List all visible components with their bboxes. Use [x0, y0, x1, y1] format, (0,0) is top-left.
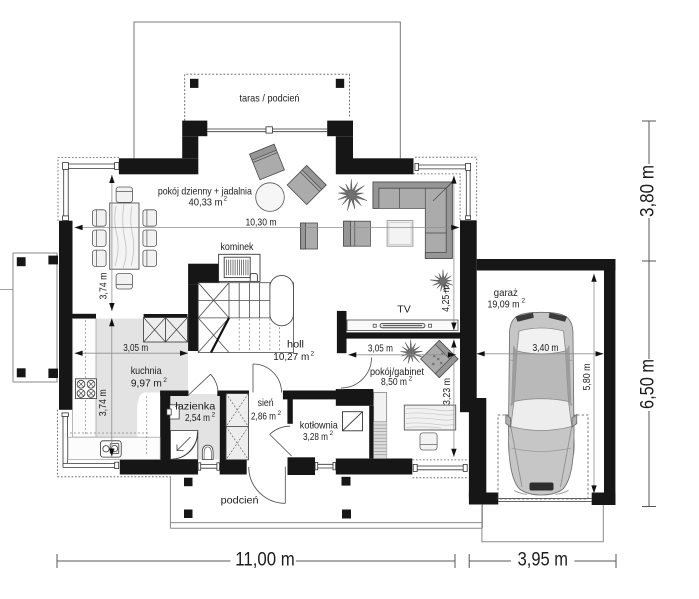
svg-text:podcień: podcień	[221, 495, 259, 507]
svg-text:10,30 m: 10,30 m	[246, 217, 277, 229]
svg-text:3,28 m: 3,28 m	[303, 431, 328, 443]
svg-text:łazienka: łazienka	[175, 401, 215, 413]
svg-text:2: 2	[330, 430, 334, 437]
svg-text:2,54 m: 2,54 m	[185, 412, 210, 424]
svg-text:3,05 m: 3,05 m	[368, 342, 393, 354]
svg-text:3,74 m: 3,74 m	[97, 389, 109, 416]
svg-text:8,50 m: 8,50 m	[381, 376, 407, 388]
svg-text:11,00 m: 11,00 m	[235, 549, 295, 570]
svg-text:4,25 m: 4,25 m	[440, 285, 452, 312]
svg-text:taras / podcień: taras / podcień	[240, 93, 300, 105]
svg-text:3,40 m: 3,40 m	[533, 342, 559, 354]
svg-text:6,50 m: 6,50 m	[638, 359, 659, 409]
svg-text:5,80 m: 5,80 m	[581, 363, 593, 390]
svg-text:2: 2	[212, 412, 216, 419]
svg-text:TV: TV	[397, 304, 410, 316]
svg-text:2: 2	[409, 375, 413, 382]
svg-text:kominek: kominek	[221, 241, 255, 253]
svg-text:2: 2	[278, 410, 282, 417]
svg-text:9,97 m: 9,97 m	[131, 378, 162, 390]
svg-text:2: 2	[163, 377, 167, 384]
svg-text:2: 2	[224, 196, 228, 203]
svg-text:2,86 m: 2,86 m	[251, 411, 276, 423]
svg-text:3,05 m: 3,05 m	[123, 342, 148, 354]
svg-text:10,27 m: 10,27 m	[273, 351, 309, 363]
svg-text:garaż: garaż	[494, 287, 518, 299]
svg-text:kuchnia: kuchnia	[131, 365, 162, 377]
svg-text:2: 2	[311, 351, 315, 358]
svg-text:sień: sień	[258, 397, 274, 409]
svg-text:3,80 m: 3,80 m	[638, 165, 659, 217]
svg-text:3,74 m: 3,74 m	[97, 272, 109, 299]
svg-text:40,33 m: 40,33 m	[189, 196, 223, 208]
svg-text:19,09 m: 19,09 m	[488, 298, 520, 310]
svg-text:3,23 m: 3,23 m	[441, 378, 453, 405]
svg-text:3,95 m: 3,95 m	[518, 549, 568, 570]
svg-text:holl: holl	[287, 338, 304, 350]
svg-text:2: 2	[522, 298, 526, 305]
